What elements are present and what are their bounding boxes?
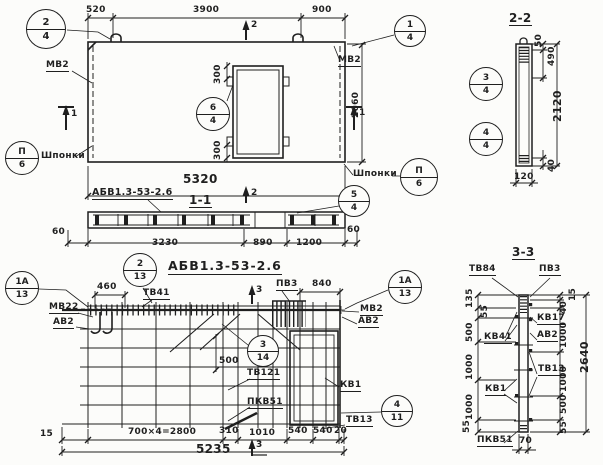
dim-135: 135	[466, 288, 475, 308]
label-shponki-left: Шпонки	[41, 152, 85, 161]
label-av2-left: АВ2	[53, 318, 74, 329]
callout-1a-13-right: 1А13	[388, 270, 422, 304]
label-tv41: ТВ41	[143, 289, 170, 300]
label-mv2-plan: МВ2	[360, 305, 383, 316]
section-3-3-title: 3-3	[512, 246, 535, 260]
dim-1000-la: 1000	[466, 354, 475, 380]
dim-70: 70	[519, 437, 532, 446]
label-pkv51-33: ПКВ51	[477, 436, 513, 447]
dim-310: 310	[219, 427, 239, 436]
section-mark-2-top: 2	[251, 21, 258, 30]
label-pkv51: ПКВ51	[247, 398, 283, 409]
dim-300-bottom: 300	[214, 140, 223, 160]
dim-2120: 2120	[552, 90, 563, 122]
dim-60-right: 60	[347, 226, 360, 235]
dim-500-right: 500	[560, 394, 569, 414]
callout-4-11: 411	[381, 395, 413, 427]
label-panel-mark-small: АБВ1.3-53-2.6	[92, 188, 173, 200]
dim-520: 520	[86, 6, 106, 15]
callout-2-4: 24	[26, 9, 66, 49]
section-1-1-title: 1-1	[189, 194, 212, 208]
dim-55-b: 55	[463, 420, 472, 433]
drawing-sheet: 520 3900 900 2660 300 300 5320 МВ2 МВ2 Ш…	[0, 0, 603, 465]
dim-500-left: 500	[466, 322, 475, 342]
dim-1000-lb: 1000	[466, 394, 475, 420]
dim-1000-rb: 1000	[560, 366, 569, 392]
dim-2640: 2640	[579, 341, 590, 373]
dim-1010: 1010	[249, 429, 275, 438]
label-mv2-right: МВ2	[338, 56, 361, 67]
section-mark-3-bottom: 3	[256, 441, 263, 450]
dim-490: 490	[548, 46, 557, 66]
callout-1a-13-left: 1А13	[5, 271, 39, 305]
label-tv13: ТВ13	[346, 416, 373, 427]
dim-5235: 5235	[196, 443, 231, 455]
dim-15: 15	[40, 430, 53, 439]
label-shponki-right: Шпонки	[353, 170, 397, 179]
label-pv3: ПВ3	[276, 280, 298, 291]
section-mark-1-right: 1	[359, 109, 366, 118]
dim-540-b: 540	[313, 427, 333, 436]
dim-15-right: 15	[569, 288, 578, 301]
dim-120: 120	[514, 173, 534, 182]
callout-6-4: 64	[196, 97, 230, 131]
dim-1200: 1200	[296, 239, 322, 248]
label-kv1: КВ1	[340, 381, 361, 392]
dim-55-a: 55	[481, 305, 490, 318]
callout-4-4: 44	[469, 122, 503, 156]
plan-title: АБВ1.3-53-2.6	[168, 260, 282, 275]
dim-700x4: 700×4=2800	[128, 428, 196, 437]
dim-540-a: 540	[288, 427, 308, 436]
label-pv3-33: ПВ3	[539, 265, 561, 276]
dim-1000-ra: 1000	[560, 322, 569, 348]
callout-3-14: 314	[247, 335, 279, 367]
dim-50: 50	[535, 34, 544, 47]
dim-20: 20	[334, 427, 347, 436]
label-mv22: МВ22	[49, 303, 79, 314]
dim-840: 840	[312, 280, 332, 289]
dim-55-right: 55	[560, 421, 569, 434]
section-mark-2-bottom: 2	[251, 189, 258, 198]
section-mark-1-left: 1	[71, 110, 78, 119]
callout-5-4: 54	[338, 185, 370, 217]
label-av2-33: АВ2	[537, 331, 558, 342]
dim-60-left: 60	[52, 228, 65, 237]
callout-3-4: 34	[469, 67, 503, 101]
dim-460: 460	[97, 283, 117, 292]
drawing-linework	[0, 0, 603, 465]
dim-40: 40	[548, 159, 557, 172]
label-kv1-33: КВ1	[485, 385, 506, 396]
label-av2-right: АВ2	[358, 317, 379, 328]
dim-5320: 5320	[183, 173, 218, 185]
dim-300-top: 300	[214, 64, 223, 84]
dim-900: 900	[312, 6, 332, 15]
dim-500-plan: 500	[219, 357, 239, 366]
callout-keys-left: П6	[5, 141, 39, 175]
label-tv84: ТВ84	[469, 265, 496, 276]
callout-2-13: 213	[123, 253, 157, 287]
dim-890: 890	[253, 239, 273, 248]
callout-1-4: 14	[394, 15, 426, 47]
section-mark-3-top: 3	[256, 286, 263, 295]
label-tv121: ТВ121	[247, 369, 280, 380]
dim-3230: 3230	[152, 239, 178, 248]
callout-keys-right: П6	[400, 158, 438, 196]
dim-3900: 3900	[193, 6, 219, 15]
section-2-2-title: 2-2	[509, 12, 532, 26]
label-mv2-left: МВ2	[46, 61, 69, 72]
dim-40-right: 40	[560, 301, 569, 314]
label-kv41: КВ41	[484, 333, 512, 344]
